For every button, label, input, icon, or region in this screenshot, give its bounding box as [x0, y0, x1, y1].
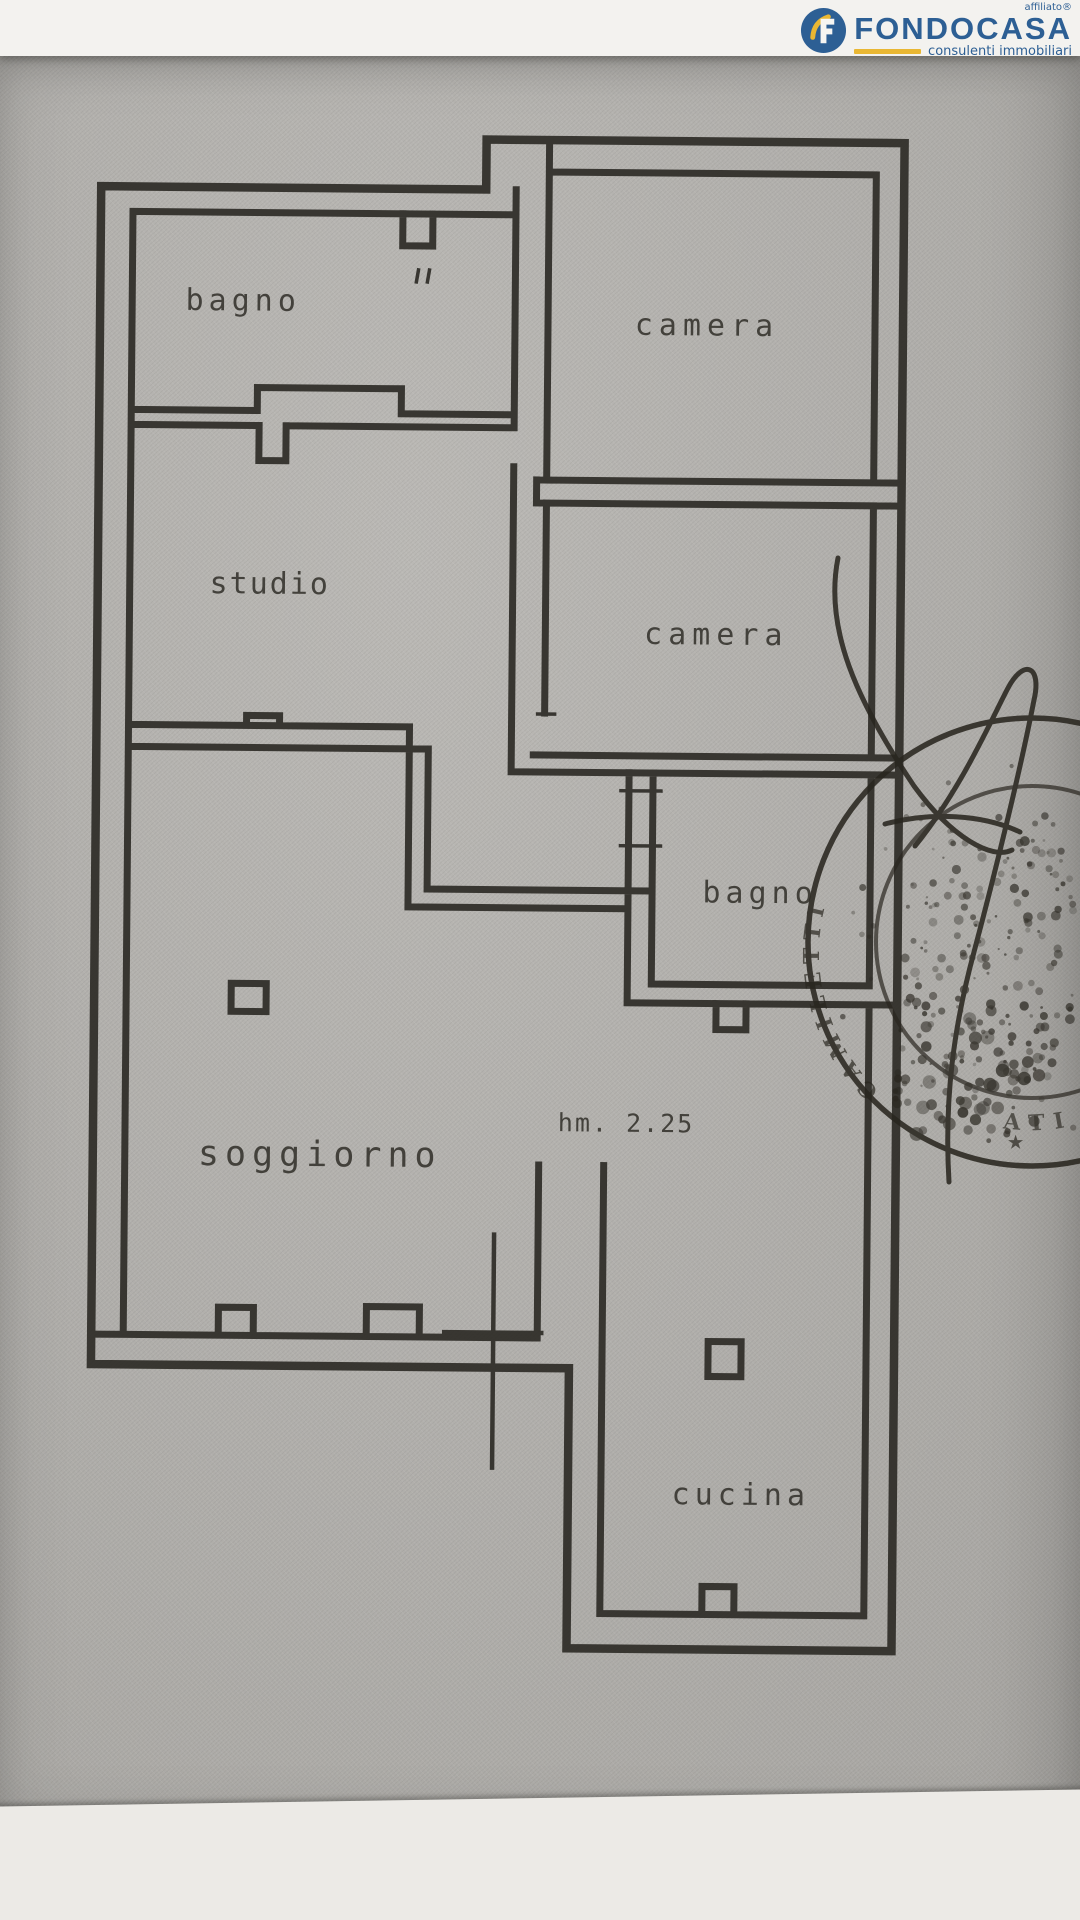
room-label-bagno-2: bagno [702, 875, 818, 911]
stamp-star: ★ [1008, 1133, 1024, 1153]
room-label-bagno-1: bagno [185, 283, 301, 319]
room-label-soggiorno: soggiorno [198, 1134, 442, 1176]
room-label-camera-1: camera [635, 308, 780, 344]
soggiorno-pillar [231, 983, 266, 1011]
pillar-marks [228, 983, 744, 1376]
brand-tagline: consulenti immobiliari [928, 45, 1072, 58]
cucina-pillar [708, 1341, 741, 1376]
header-strip: affiliato® FONDOCASA consulenti immobili… [0, 0, 1080, 56]
fondocasa-badge-icon [800, 7, 847, 54]
room-labels: bagno camera studio camera bagno soggior… [175, 283, 823, 1514]
bottom-sheet [0, 1789, 1080, 1920]
survey-cross-mark [443, 1234, 542, 1468]
ceiling-height-note: hm. 2.25 [558, 1108, 695, 1138]
fondocasa-logo: affiliato® FONDOCASA consulenti immobili… [800, 3, 1072, 58]
room-label-studio: studio [209, 566, 330, 602]
brand-underline [854, 49, 921, 54]
room-label-cucina: cucina [671, 1477, 810, 1513]
brand-name: FONDOCASA [854, 13, 1072, 44]
floorplan-photo: bagno camera studio camera bagno soggior… [0, 0, 1080, 1920]
door-jamb-marks [411, 270, 665, 846]
room-label-camera-2: camera [644, 617, 789, 653]
notary-stamp: NOTAI CAMILETTI ATI ★ [799, 558, 1080, 1182]
floorplan-svg: bagno camera studio camera bagno soggior… [0, 0, 1080, 1920]
